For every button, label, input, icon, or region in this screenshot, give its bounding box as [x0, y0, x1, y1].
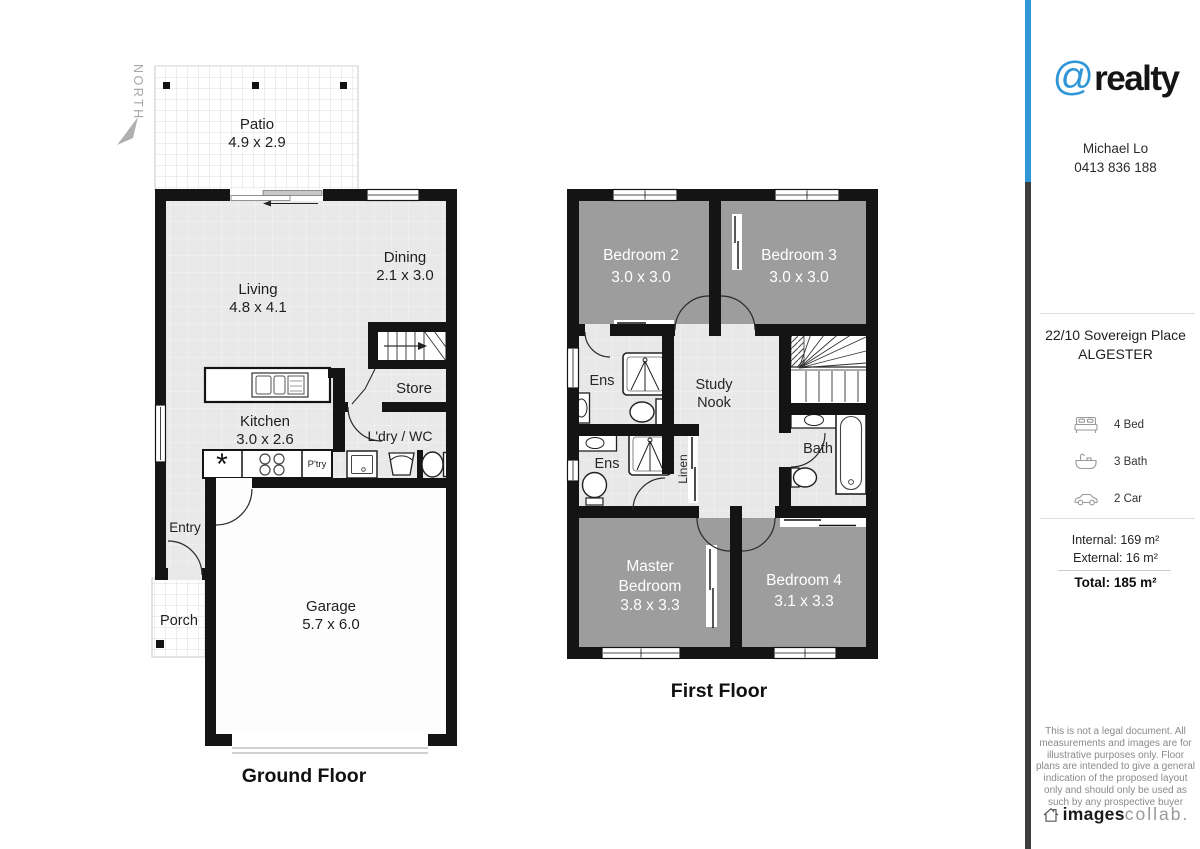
bed-icon [1071, 415, 1101, 435]
address-line1: 22/10 Sovereign Place [1031, 326, 1200, 345]
ens-upper-label: Ens [590, 373, 615, 389]
shower-icon [623, 353, 667, 395]
living-dims: 4.8 x 4.1 [229, 299, 287, 316]
toilet-icon [583, 473, 607, 506]
feature-bath: 3 Bath [1031, 443, 1200, 480]
ground-floor-plan: NORTH [117, 64, 457, 787]
vanity-icon [574, 435, 617, 451]
entry-label: Entry [169, 520, 201, 535]
bathtub-icon [836, 412, 866, 494]
imagescollab-logo: imagescollab. [1031, 804, 1200, 825]
living-label: Living [238, 281, 277, 298]
dining-label: Dining [384, 249, 427, 266]
laundry-fixtures [347, 450, 453, 478]
bedroom4-dims: 3.1 x 3.3 [774, 593, 833, 610]
feature-bed-label: 4 Bed [1114, 419, 1160, 431]
bath-icon [1071, 452, 1101, 472]
feature-car: 2 Car [1031, 480, 1200, 517]
disclaimer-text: This is not a legal document. All measur… [1034, 726, 1197, 809]
sidebar: @realty Michael Lo 0413 836 188 22/10 So… [1031, 0, 1200, 849]
property-address: 22/10 Sovereign Place ALGESTER [1031, 326, 1200, 364]
bath-label: Bath [803, 441, 833, 457]
fridge-symbol: * [216, 448, 228, 481]
study-nook-label-line2: Nook [697, 395, 732, 411]
study-nook-label-line1: Study [695, 377, 733, 393]
kitchen-dims: 3.0 x 2.6 [236, 431, 294, 448]
pantry-label: P'try [308, 459, 327, 470]
floorplan-page: NORTH [0, 0, 1200, 849]
area-internal: Internal: 169 m² [1031, 531, 1200, 549]
bedroom2-label: Bedroom 2 [603, 247, 679, 264]
car-icon [1071, 490, 1101, 508]
ens-lower-label: Ens [595, 456, 620, 472]
sliding-door-icon [263, 191, 322, 196]
first-floor-title: First Floor [671, 680, 768, 702]
ground-floor-title: Ground Floor [242, 765, 367, 787]
feature-bath-label: 3 Bath [1114, 456, 1160, 468]
logo-text-bold: images [1063, 804, 1125, 825]
agent-phone: 0413 836 188 [1031, 158, 1200, 177]
house-icon [1042, 806, 1060, 824]
north-indicator: NORTH [117, 64, 145, 145]
kitchen-island [205, 368, 330, 402]
master-label-line2: Bedroom [619, 578, 682, 595]
agent-info: Michael Lo 0413 836 188 [1031, 139, 1200, 177]
area-summary: Internal: 169 m² External: 16 m² [1031, 531, 1200, 567]
feature-bed: 4 Bed [1031, 406, 1200, 443]
kitchen-label: Kitchen [240, 413, 290, 430]
divider [1040, 313, 1195, 314]
area-external: External: 16 m² [1031, 549, 1200, 567]
master-dims: 3.8 x 3.3 [620, 597, 679, 614]
bedroom3-label: Bedroom 3 [761, 247, 837, 264]
feature-car-label: 2 Car [1114, 493, 1160, 505]
porch-label: Porch [160, 613, 198, 629]
garage-dims: 5.7 x 6.0 [302, 616, 360, 633]
divider [1058, 570, 1171, 571]
brand-name: realty [1094, 59, 1178, 98]
store-label: Store [396, 380, 432, 397]
brand-logo: @realty [1031, 53, 1200, 100]
laundry-label: L'dry / WC [368, 428, 433, 444]
address-line2: ALGESTER [1031, 345, 1200, 364]
ground-stairs [377, 331, 451, 361]
toilet-icon [791, 468, 817, 487]
patio-label: Patio [240, 116, 274, 133]
logo-text-light: collab. [1125, 804, 1190, 825]
linen-label: Linen [676, 454, 690, 483]
first-stairs [791, 330, 866, 403]
bedroom4-label: Bedroom 4 [766, 572, 842, 589]
first-floor-plan: Bedroom 2 3.0 x 3.0 Bedroom 3 3.0 x 3.0 … [567, 189, 878, 702]
area-total: Total: 185 m² [1031, 575, 1200, 590]
brand-at-symbol: @ [1052, 53, 1094, 99]
north-label: NORTH [131, 64, 145, 121]
divider [1040, 518, 1195, 519]
master-label-line1: Master [626, 558, 673, 575]
bedroom3-dims: 3.0 x 3.0 [769, 269, 829, 286]
dining-dims: 2.1 x 3.0 [376, 267, 434, 284]
agent-name: Michael Lo [1031, 139, 1200, 158]
sink-icon [256, 376, 271, 394]
feature-list: 4 Bed 3 Bath [1031, 406, 1200, 517]
garage-label: Garage [306, 598, 356, 615]
patio-dims: 4.9 x 2.9 [228, 134, 286, 151]
floorplan-drawing: NORTH [0, 0, 1200, 849]
north-arrow-icon [117, 117, 138, 145]
bedroom2-dims: 3.0 x 3.0 [611, 269, 671, 286]
kitchen-counter: * P'try [203, 448, 332, 481]
